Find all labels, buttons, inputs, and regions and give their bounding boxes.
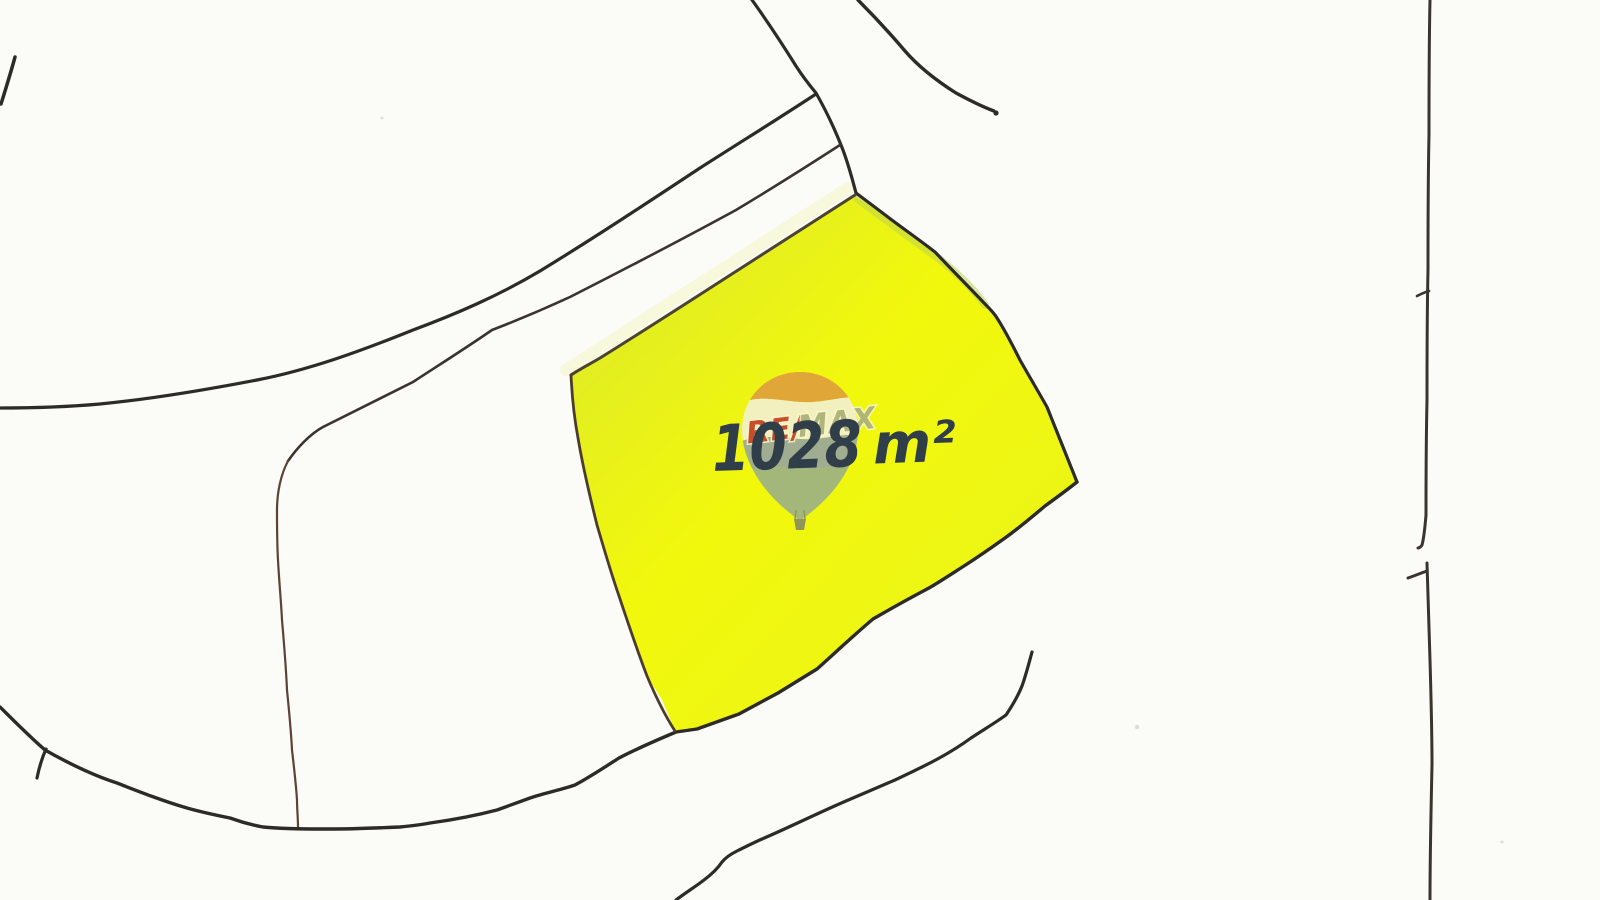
area-label: 1028 m² [711,405,958,487]
scan-speck [1135,725,1139,729]
area-value-text: 1028 [711,408,863,487]
scan-speck [1501,841,1504,844]
plot-sketch-canvas: RE/ MAX 1028 m² [0,0,1600,900]
boundary-fork-endpoint-dot [993,110,998,115]
balloon-basket [794,519,806,530]
scan-speck [381,117,384,120]
scanned-plot-map: RE/ MAX 1028 m² [0,0,1600,900]
area-unit-text: m² [872,410,958,478]
